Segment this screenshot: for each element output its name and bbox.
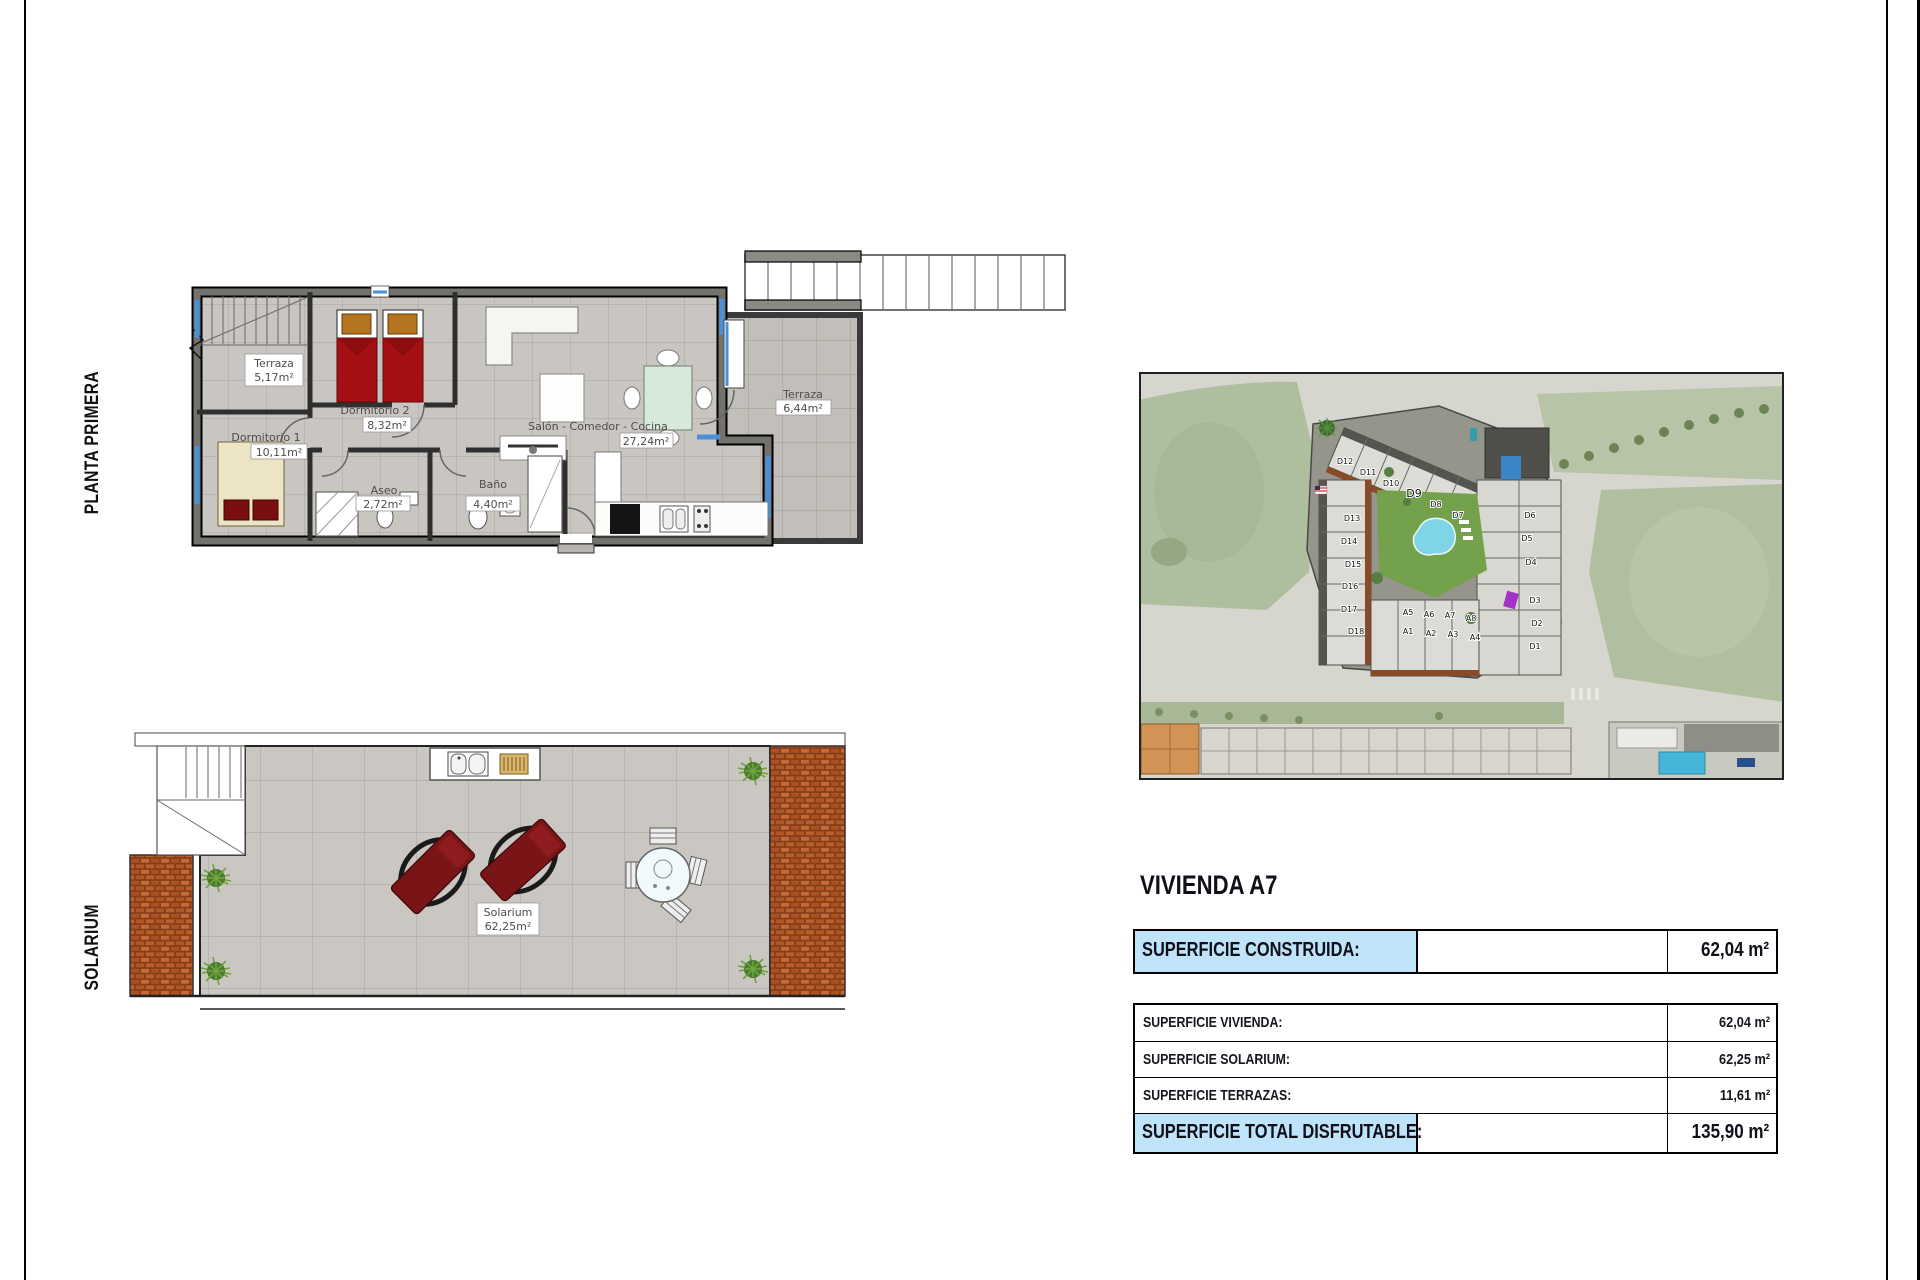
map-unit-label: A5: [1403, 608, 1414, 617]
room-area-dormitorio2: 8,32m²: [367, 419, 407, 432]
surface-vivienda-value-cell: 62,04 m²: [1668, 1005, 1776, 1041]
map-unit-label: D4: [1525, 558, 1536, 567]
room-label-dormitorio1: Dormitorio 1: [231, 431, 300, 444]
flag-icon: [1315, 486, 1327, 494]
map-unit-label: A6: [1424, 610, 1435, 619]
map-unit-label: D10: [1383, 479, 1399, 488]
floor-label-solarium-text: SOLARIUM: [81, 904, 105, 990]
bed-double-2: [383, 310, 423, 402]
map-unit-label: D8: [1430, 500, 1441, 509]
surface-total-label-cell: SUPERFICIE TOTAL DISFRUTABLE:: [1135, 1114, 1418, 1152]
room-label-dormitorio2: Dormitorio 2: [340, 404, 409, 417]
surface-construida-label: SUPERFICIE CONSTRUIDA:: [1142, 931, 1360, 970]
neighbor-pool: [1659, 752, 1705, 774]
surface-vivienda-label: SUPERFICIE VIVIENDA:: [1143, 1005, 1282, 1040]
floor-plan-solarium: Solarium 62,25m²: [110, 720, 870, 1025]
solarium-label: Solarium 62,25m²: [477, 903, 539, 935]
fridge: [610, 504, 640, 534]
surface-terrazas-label: SUPERFICIE TERRAZAS:: [1143, 1078, 1291, 1113]
surface-terrazas-value-cell: 11,61 m²: [1668, 1078, 1776, 1113]
solarium-stairs: [157, 746, 245, 855]
map-unit-label: D1: [1529, 642, 1540, 651]
unit-title-text: VIVIENDA A7: [1140, 870, 1277, 901]
map-unit-label: A4: [1470, 633, 1481, 642]
room-label-salon: Salón - Comedor - Cocina: [528, 420, 668, 433]
room-label-terraza-right: Terraza: [782, 388, 823, 401]
surface-terrazas-label-cell: SUPERFICIE TERRAZAS:: [1135, 1078, 1668, 1113]
map-unit-label: A8: [1466, 614, 1477, 623]
room-area-aseo: 2,72m²: [363, 498, 403, 511]
map-unit-label: D13: [1344, 514, 1360, 523]
map-unit-label: D7: [1452, 511, 1463, 520]
building-col-d13-d18: [1319, 480, 1371, 665]
roof-tiles-left: [130, 855, 193, 996]
map-unit-label: A1: [1403, 627, 1414, 636]
parapet-band: [135, 733, 845, 746]
floor-plan-planta-primera: Terraza 5,17m² Dormitorio 2 8,32m² Dormi…: [150, 240, 1090, 570]
building-block-d1-d6: [1477, 428, 1561, 675]
map-unit-label: D14: [1341, 537, 1357, 546]
map-unit-label: D12: [1337, 457, 1353, 466]
floor-label-planta-primera: PLANTA PRIMERA: [81, 380, 105, 530]
room-label-aseo: Aseo: [371, 484, 398, 497]
surface-terrazas-row: SUPERFICIE TERRAZAS: 11,61 m²: [1135, 1077, 1776, 1113]
room-area-terraza-int: 5,17m²: [254, 371, 294, 384]
entry-gap: [560, 534, 592, 543]
map-unit-label: D16: [1342, 582, 1358, 591]
surface-total-spacer-cell: [1418, 1114, 1668, 1152]
surface-vivienda-value: 62,04 m²: [1719, 1005, 1770, 1040]
map-unit-label: A2: [1426, 629, 1437, 638]
map-unit-label: A7: [1445, 611, 1456, 620]
plan-sheet: PLANTA PRIMERA SOLARIUM: [0, 0, 1920, 1280]
room-area-bano: 4,40m²: [473, 498, 513, 511]
map-unit-label: D18: [1348, 627, 1364, 636]
surface-solarium-value: 62,25 m²: [1719, 1042, 1770, 1077]
page-border-left: [24, 0, 26, 1280]
map-unit-label: A3: [1448, 630, 1459, 639]
floor-label-planta-primera-text: PLANTA PRIMERA: [81, 371, 105, 514]
surface-total-label: SUPERFICIE TOTAL DISFRUTABLE:: [1142, 1114, 1422, 1151]
map-unit-label: D5: [1521, 534, 1532, 543]
surface-construida-label-cell: SUPERFICIE CONSTRUIDA:: [1135, 931, 1418, 972]
surface-total-value-cell: 135,90 m²: [1668, 1114, 1776, 1152]
room-area-solarium: 62,25m²: [485, 920, 532, 933]
surface-construida-spacer-cell: [1418, 931, 1668, 972]
floor-label-solarium: SOLARIUM: [81, 910, 105, 1000]
rooftop-pool: [1501, 456, 1521, 480]
aerial-site-map: D12 D11 D10 D9 D8 D7 D13 D14 D15 D16 D17…: [1139, 372, 1784, 780]
surface-construida-value-cell: 62,04 m²: [1668, 931, 1776, 972]
map-unit-label: D2: [1531, 619, 1542, 628]
surface-solarium-label: SUPERFICIE SOLARIUM:: [1143, 1042, 1290, 1077]
room-area-terraza-right: 6,44m²: [783, 402, 823, 415]
map-unit-label: D11: [1360, 468, 1376, 477]
surface-solarium-label-cell: SUPERFICIE SOLARIUM:: [1135, 1042, 1668, 1077]
surface-construida-value: 62,04 m²: [1701, 931, 1769, 970]
room-area-salon: 27,24m²: [623, 435, 670, 448]
page-border-right-inner: [1886, 0, 1888, 1280]
surface-total-row: SUPERFICIE TOTAL DISFRUTABLE: 135,90 m²: [1135, 1113, 1776, 1152]
entry-step: [558, 544, 594, 553]
surface-solarium-row: SUPERFICIE SOLARIUM: 62,25 m²: [1135, 1041, 1776, 1077]
room-label-terraza-int: Terraza: [253, 357, 294, 370]
car-blue: [1737, 758, 1755, 767]
car-teal: [1470, 428, 1477, 441]
map-unit-label: D15: [1345, 560, 1361, 569]
room-area-dormitorio1: 10,11m²: [256, 446, 303, 459]
surface-solarium-value-cell: 62,25 m²: [1668, 1042, 1776, 1077]
surface-vivienda-label-cell: SUPERFICIE VIVIENDA:: [1135, 1005, 1668, 1041]
map-unit-label: D3: [1529, 596, 1540, 605]
surface-vivienda-row: SUPERFICIE VIVIENDA: 62,04 m²: [1135, 1005, 1776, 1041]
surface-construida-row: SUPERFICIE CONSTRUIDA: 62,04 m²: [1133, 929, 1778, 974]
surface-terrazas-value: 11,61 m²: [1720, 1078, 1770, 1113]
unit-title: VIVIENDA A7: [1140, 870, 1308, 901]
coffee-table: [540, 374, 584, 422]
room-label-solarium: Solarium: [484, 906, 533, 919]
map-unit-label: D6: [1524, 511, 1535, 520]
room-label-bano: Baño: [479, 478, 507, 491]
surface-detail-table: SUPERFICIE VIVIENDA: 62,04 m² SUPERFICIE…: [1133, 1003, 1778, 1154]
bbq-counter: [430, 748, 540, 780]
bed-double-1: [337, 310, 377, 402]
map-unit-label: D17: [1341, 605, 1357, 614]
surface-total-value: 135,90 m²: [1692, 1114, 1769, 1151]
map-unit-label: D9: [1406, 487, 1421, 500]
roof-tiles-right: [770, 746, 845, 996]
